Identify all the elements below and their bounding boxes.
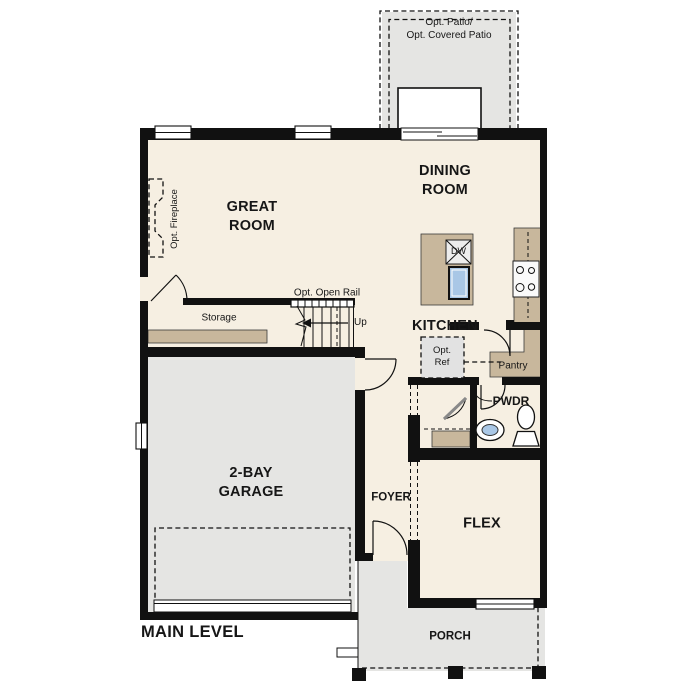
kitchen-label: KITCHEN: [412, 317, 478, 336]
wall-garage-south: [140, 612, 358, 620]
wall-west-mid: [140, 301, 148, 347]
wall-foyer-front: [355, 553, 373, 561]
patio-label: Opt. Patio/ Opt. Covered Patio: [406, 16, 491, 42]
stair-rail: [291, 300, 354, 307]
up-label: Up: [354, 316, 367, 329]
foyer-floor: [365, 460, 408, 561]
floor-plan-drawing: [0, 0, 687, 687]
wall-foyer-east: [408, 540, 420, 608]
garage-door-opening: [355, 358, 365, 390]
stove: [513, 261, 539, 297]
wall-flex-north: [408, 448, 547, 460]
dishwasher-label: DW: [451, 246, 466, 258]
wall-west-upper: [140, 140, 148, 277]
floor-plan: Opt. Patio/ Opt. Covered Patio DINING RO…: [0, 0, 687, 687]
wall-hall-a: [408, 377, 420, 385]
open-rail-label: Opt. Open Rail: [294, 286, 360, 299]
pantry-label: Pantry: [499, 359, 528, 372]
wall-pwdr-north-b: [502, 377, 547, 385]
powder-label: PWDR: [493, 394, 530, 410]
flex-label: FLEX: [463, 514, 501, 533]
toilet-tank: [513, 432, 539, 447]
flex-floor: [408, 460, 541, 608]
porch-post: [352, 668, 366, 681]
foyer-label: FOYER: [371, 490, 411, 505]
garage-label: 2-BAY GARAGE: [219, 464, 284, 502]
level-title: MAIN LEVEL: [141, 622, 244, 644]
storage-shelf: [148, 330, 267, 343]
great-room-door-opening: [140, 277, 148, 301]
porch-post: [532, 666, 546, 679]
patio-stoop: [398, 88, 481, 130]
wall-kitchen-b: [510, 322, 547, 330]
wall-garage-east-a: [355, 347, 365, 358]
sliding-glass-door: [401, 128, 478, 140]
wall-east: [540, 140, 547, 608]
fireplace-label: Opt. Fireplace: [169, 189, 181, 249]
porch-side-step: [337, 648, 358, 657]
storage-label: Storage: [201, 311, 236, 324]
refrigerator-label: Opt. Ref: [433, 345, 451, 369]
hall-cased-opening: [408, 385, 420, 415]
porch-label: PORCH: [429, 629, 471, 644]
garage-overhead-door: [154, 600, 351, 612]
wall-garage-east-b: [355, 390, 365, 553]
closet-shelf: [432, 431, 470, 447]
dining-room-label: DINING ROOM: [419, 162, 471, 200]
wall-garage-north: [140, 347, 365, 357]
porch-post: [448, 666, 463, 679]
wall-north: [140, 128, 547, 140]
great-room-label: GREAT ROOM: [227, 198, 278, 236]
wall-garage-west: [140, 347, 148, 620]
